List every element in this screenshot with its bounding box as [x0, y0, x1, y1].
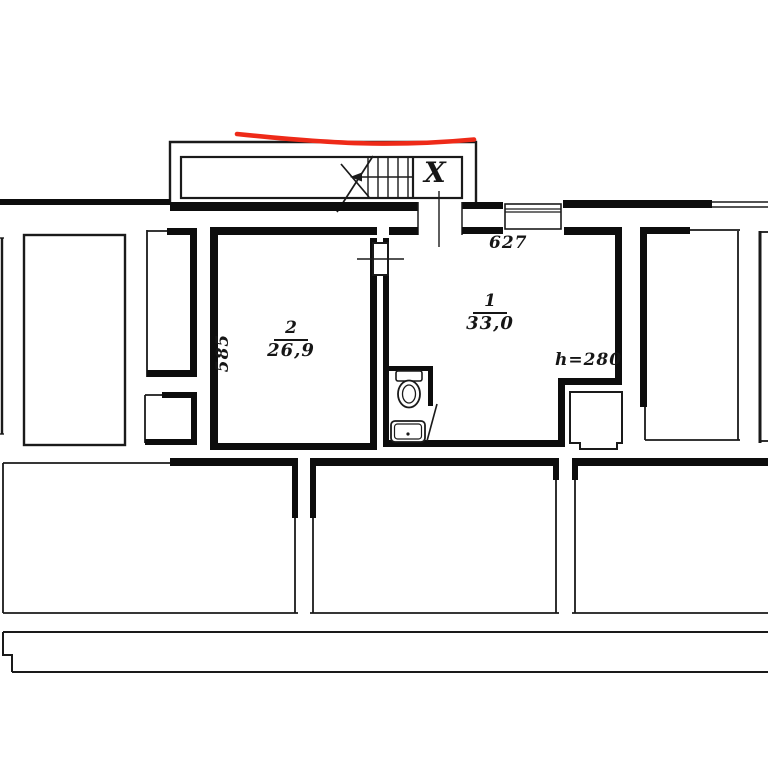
window-icon — [505, 204, 561, 229]
sink-icon — [391, 421, 425, 442]
entry-opening — [418, 202, 462, 235]
outer-top-wall-thin-right — [712, 202, 768, 207]
room-2-label: 2 26,9 — [255, 320, 327, 361]
ceiling-height-label: h=280 — [555, 352, 622, 370]
apartment-number-label: 627 — [489, 235, 528, 253]
room-1-label: 1 33,0 — [454, 293, 526, 334]
stairwell-label: X — [424, 158, 446, 187]
room-1-area: 33,0 — [454, 315, 526, 334]
toilet-icon — [396, 371, 422, 408]
balconies — [3, 458, 768, 613]
vent-shaft-icon — [357, 243, 404, 275]
floor-plan-scan: X 627 2 26,9 1 33,0 585 h=280 — [0, 0, 768, 768]
neighbor-rooms-left — [0, 228, 197, 445]
bathroom-door-line — [427, 404, 437, 441]
outer-top-wall — [0, 199, 712, 211]
facade-edge-line — [3, 632, 768, 672]
duct-shaft — [570, 392, 622, 449]
room-1-number: 1 — [473, 293, 507, 314]
floor-plan-drawing — [0, 0, 768, 768]
neighbor-rooms-right — [640, 227, 768, 443]
room-2-area: 26,9 — [255, 342, 327, 361]
wall-dimension-label: 585 — [215, 323, 233, 383]
room-2-number: 2 — [274, 320, 308, 341]
